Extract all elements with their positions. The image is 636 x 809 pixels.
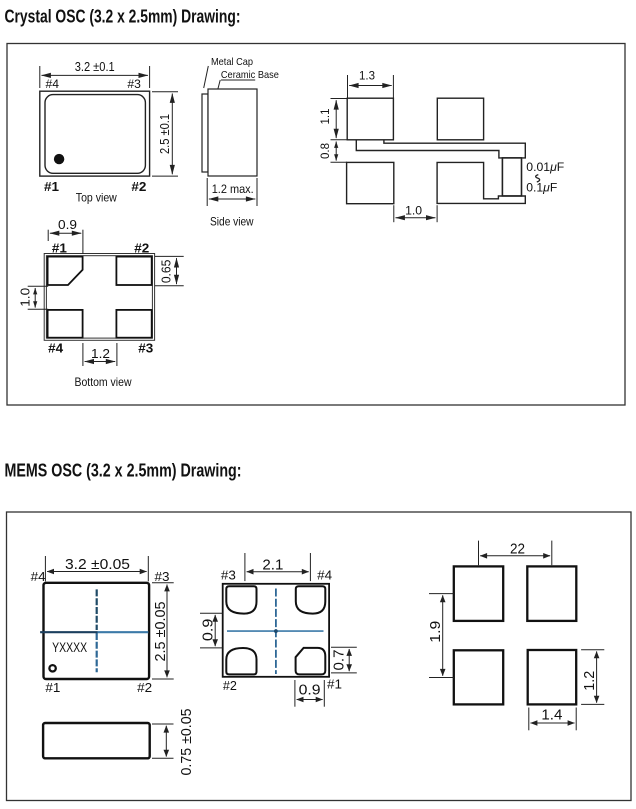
svg-text:#1: #1 [45, 680, 60, 695]
svg-text:1.0: 1.0 [405, 204, 422, 218]
svg-text:1.1: 1.1 [318, 108, 332, 124]
svg-text:#1: #1 [52, 241, 67, 255]
svg-text:Bottom view: Bottom view [75, 375, 132, 389]
svg-text:#2: #2 [134, 241, 149, 255]
svg-text:0.01μF: 0.01μF [526, 160, 564, 174]
svg-text:YXXXX: YXXXX [52, 640, 87, 655]
svg-text:#1: #1 [327, 677, 342, 692]
svg-text:1.4: 1.4 [541, 708, 562, 724]
svg-text:1.2: 1.2 [91, 347, 110, 361]
svg-text:3.2 ±0.05: 3.2 ±0.05 [65, 557, 130, 573]
svg-text:Metal Cap: Metal Cap [211, 56, 253, 68]
svg-text:Ceramic Base: Ceramic Base [221, 69, 279, 81]
svg-text:1.2 max.: 1.2 max. [212, 182, 254, 196]
svg-text:MEMS OSC (3.2 x 2.5mm) Drawing: MEMS OSC (3.2 x 2.5mm) Drawing: [5, 461, 242, 481]
svg-text:22: 22 [510, 541, 525, 557]
svg-text:1.0: 1.0 [18, 288, 32, 307]
svg-text:1.9: 1.9 [428, 621, 444, 643]
svg-text:2.5 ±0.1: 2.5 ±0.1 [157, 114, 172, 154]
svg-text:#2: #2 [131, 180, 146, 194]
svg-text:#3: #3 [155, 569, 170, 584]
svg-text:#2: #2 [223, 678, 237, 693]
svg-text:#3: #3 [127, 79, 141, 91]
svg-text:2.5 ±0.05: 2.5 ±0.05 [153, 602, 169, 662]
svg-text:2.1: 2.1 [262, 558, 283, 574]
svg-text:1.3: 1.3 [359, 69, 375, 83]
svg-text:Side view: Side view [210, 215, 254, 229]
svg-text:#4: #4 [317, 568, 332, 583]
svg-text:1.2: 1.2 [582, 671, 598, 691]
svg-text:#3: #3 [221, 568, 236, 583]
svg-text:0.9: 0.9 [58, 218, 77, 232]
svg-text:3.2 ±0.1: 3.2 ±0.1 [75, 59, 115, 74]
svg-text:#2: #2 [137, 680, 152, 695]
svg-text:#4: #4 [48, 342, 63, 356]
svg-text:Top view: Top view [76, 191, 117, 205]
svg-text:0.65: 0.65 [159, 260, 174, 284]
svg-text:0.7: 0.7 [332, 650, 348, 671]
svg-text:0.1μF: 0.1μF [526, 180, 557, 194]
svg-text:0.8: 0.8 [318, 143, 332, 159]
svg-text:#4: #4 [46, 79, 60, 91]
svg-text:0.9: 0.9 [200, 619, 216, 642]
svg-text:#1: #1 [44, 180, 59, 194]
svg-text:#4: #4 [31, 569, 46, 584]
svg-text:0.9: 0.9 [299, 683, 321, 699]
svg-text:#3: #3 [138, 342, 153, 356]
svg-text:0.75 ±0.05: 0.75 ±0.05 [179, 709, 195, 776]
svg-text:Crystal OSC (3.2 x 2.5mm) Draw: Crystal OSC (3.2 x 2.5mm) Drawing: [5, 7, 241, 27]
